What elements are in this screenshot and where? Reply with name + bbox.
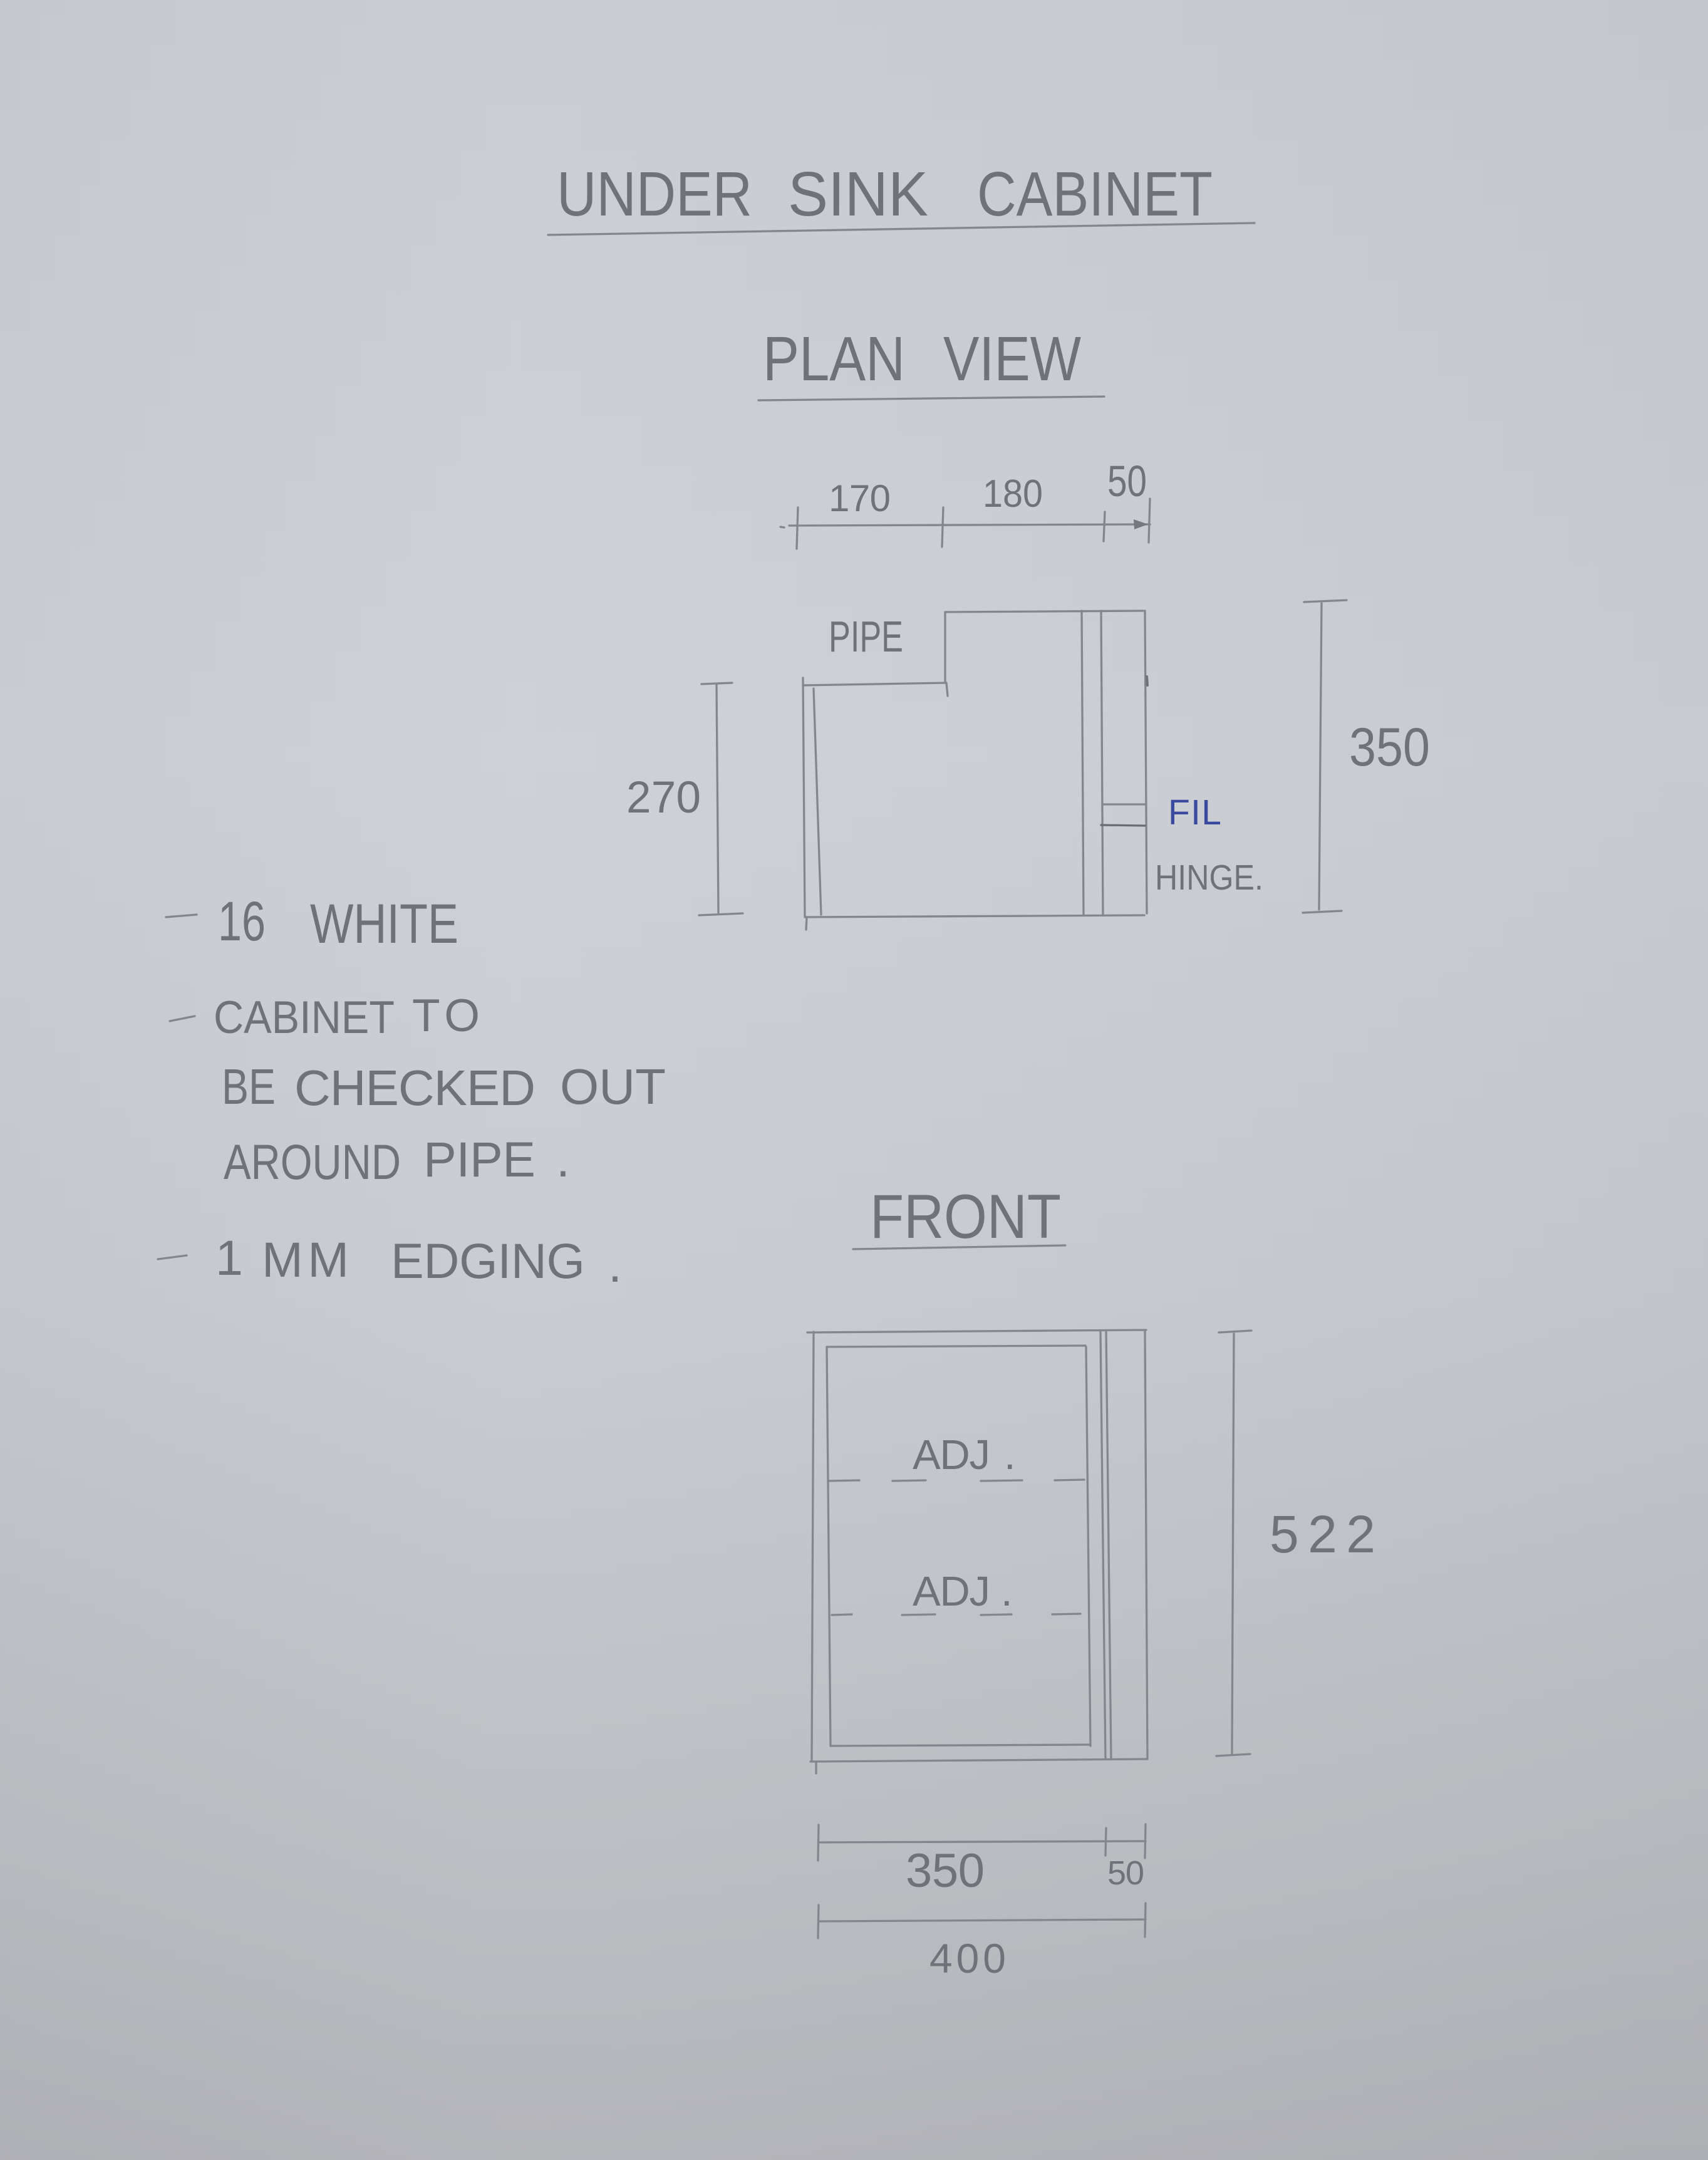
- svg-text:TO: TO: [412, 990, 480, 1041]
- svg-text:PIPE: PIPE: [829, 612, 903, 661]
- svg-text:AROUND: AROUND: [224, 1134, 401, 1190]
- svg-text:ADJ: ADJ: [913, 1568, 990, 1615]
- svg-text:350: 350: [1349, 717, 1430, 777]
- svg-text:180: 180: [983, 472, 1043, 516]
- svg-text:.: .: [1001, 1568, 1013, 1615]
- svg-text:.: .: [608, 1237, 622, 1292]
- svg-text:CABINET: CABINET: [977, 159, 1213, 229]
- svg-text:ADJ: ADJ: [913, 1431, 990, 1478]
- svg-text:1: 1: [215, 1230, 243, 1285]
- svg-text:170: 170: [829, 477, 891, 519]
- svg-text:16: 16: [218, 890, 266, 952]
- svg-text:350: 350: [906, 1844, 985, 1898]
- svg-text:VIEW: VIEW: [943, 324, 1082, 394]
- svg-text:.: .: [556, 1131, 570, 1187]
- svg-text:WHITE: WHITE: [310, 892, 458, 955]
- svg-text:50: 50: [1107, 457, 1147, 506]
- svg-text:CABINET: CABINET: [214, 992, 395, 1043]
- svg-text:PIPE: PIPE: [423, 1131, 536, 1187]
- svg-text:SINK: SINK: [788, 159, 928, 229]
- svg-text:PLAN: PLAN: [763, 324, 905, 394]
- svg-text:400: 400: [929, 1935, 1006, 1981]
- svg-text:OUT: OUT: [560, 1059, 666, 1114]
- svg-text:CHECKED: CHECKED: [294, 1060, 536, 1116]
- svg-text:HINGE.: HINGE.: [1155, 858, 1263, 898]
- svg-text:UNDER: UNDER: [557, 159, 752, 229]
- svg-text:.: .: [1004, 1431, 1016, 1478]
- svg-text:FIL: FIL: [1168, 792, 1221, 833]
- svg-text:FRONT: FRONT: [870, 1181, 1061, 1251]
- svg-text:BE: BE: [222, 1059, 276, 1114]
- svg-text:270: 270: [626, 773, 701, 823]
- svg-text:EDGING: EDGING: [391, 1233, 585, 1289]
- svg-text:522: 522: [1270, 1505, 1375, 1564]
- svg-text:50: 50: [1107, 1854, 1144, 1892]
